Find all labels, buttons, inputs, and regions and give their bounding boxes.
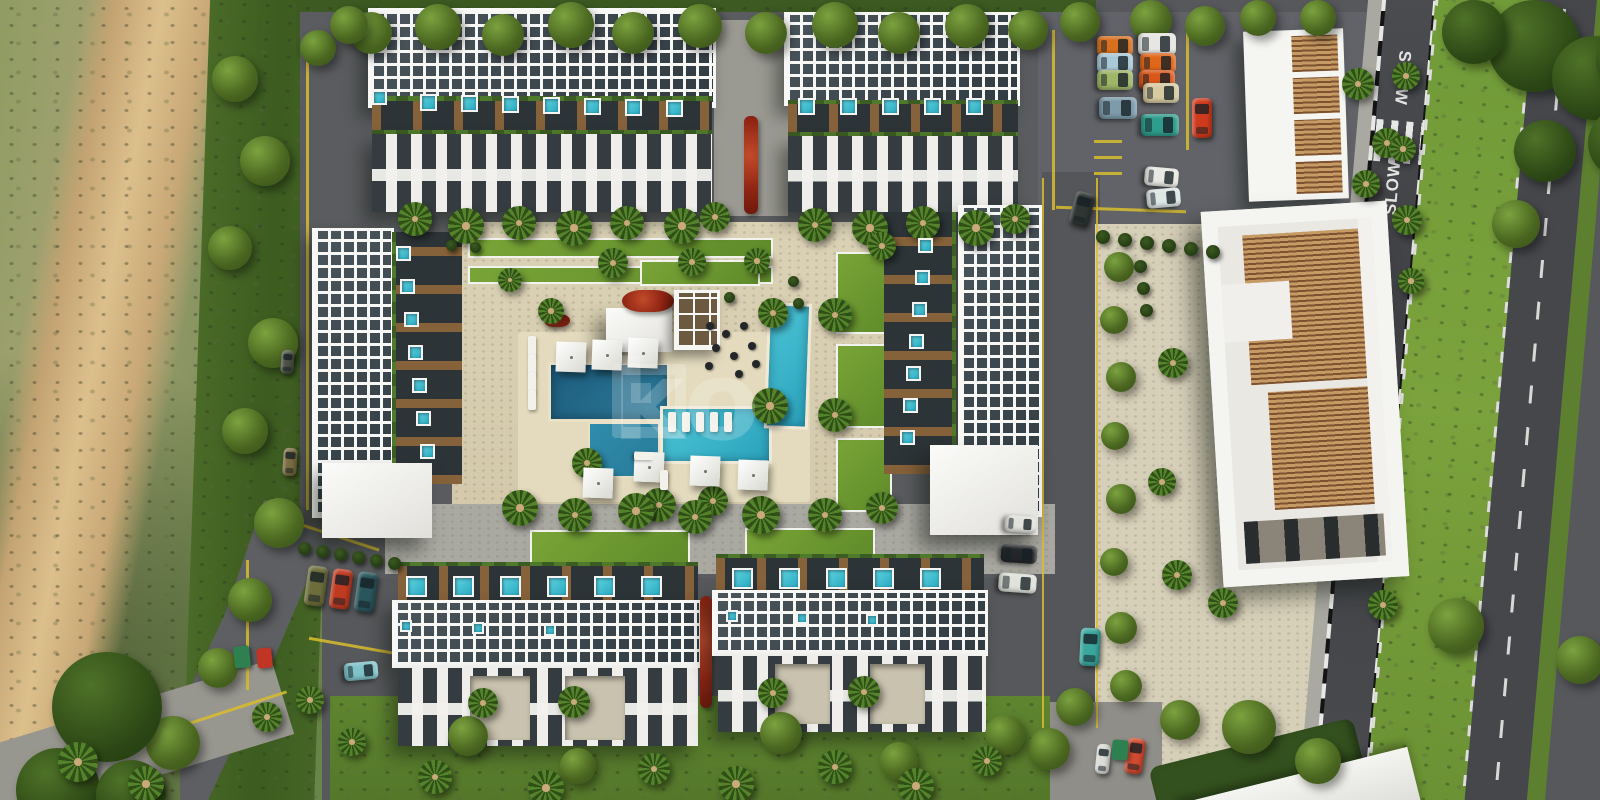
tree [212,56,258,102]
palm-tree [1158,348,1188,378]
palm-tree [700,202,730,232]
cypress-tree [316,545,329,558]
sun-lounger [660,470,668,490]
plunge-pool [594,576,615,597]
car [282,448,298,477]
cypress-tree [1096,230,1110,244]
plunge-pool [912,302,927,317]
palm-tree [898,768,934,800]
sun-lounger [724,412,732,432]
plunge-pool [826,568,847,589]
cypress-tree [1140,304,1153,317]
plunge-pool [798,98,815,115]
car [998,572,1037,594]
cafe-table [706,322,714,330]
dumpster [256,647,273,668]
tree [228,578,272,622]
tree [1442,0,1506,64]
tree [1106,484,1136,514]
plunge-pool [726,610,738,622]
plunge-pool [918,238,933,253]
plunge-pool [544,624,556,636]
cypress-tree [298,542,311,555]
plunge-pool [502,96,519,113]
palm-tree [758,298,788,328]
car [1000,544,1037,564]
tree [1104,252,1134,282]
tree [1556,636,1600,684]
plunge-pool [406,576,427,597]
plunge-pool [400,620,412,632]
car [1138,33,1176,55]
dumpster [233,645,251,669]
cypress-tree [388,557,401,570]
tree [254,498,304,548]
plunge-pool [420,94,437,111]
plunge-pool [920,568,941,589]
palm-tree [678,248,706,276]
plunge-pool [372,90,387,105]
tree [1222,700,1276,754]
plunge-pool [416,411,431,426]
tree [330,6,368,44]
palm-tree [610,206,644,240]
palm-tree [664,208,700,244]
cypress-tree [1118,233,1132,247]
sun-lounger [696,412,704,432]
palm-tree [498,268,522,292]
plunge-pool [915,270,930,285]
cypress-tree [1134,260,1147,273]
palm-tree [808,498,842,532]
car [1192,98,1212,138]
plunge-pool [900,430,915,445]
cafe-table [722,330,730,338]
tree [222,408,268,454]
car [1004,514,1037,533]
palm-tree [866,492,898,524]
plunge-pool [400,279,415,294]
palm-tree [558,498,592,532]
palm-tree [538,298,564,324]
car [1143,83,1179,103]
tree [1240,0,1276,36]
palm-tree [598,248,628,278]
sun-umbrella [582,467,613,498]
palm-tree [798,208,832,242]
palm-tree [868,232,896,260]
plunge-pool [420,444,435,459]
palm-tree [1162,560,1192,590]
tree [812,2,858,48]
plunge-pool [732,568,753,589]
palm-tree [1148,468,1176,496]
aerial-render-scene: SLOW SLOW ko [0,0,1600,800]
tree [678,4,722,48]
tree [198,648,238,688]
sun-lounger [634,452,654,460]
palm-tree [1398,268,1424,294]
tree [548,2,594,48]
tree [1060,2,1100,42]
sun-umbrella [689,455,720,486]
tree [1101,422,1129,450]
plunge-pool [625,99,642,116]
plunge-pool [796,612,808,624]
plunge-pool [666,100,683,117]
tree [1295,738,1341,784]
plunge-pool [906,366,921,381]
tree [448,716,488,756]
plunge-pool [543,97,560,114]
palm-tree [558,686,590,718]
cypress-tree [788,276,799,287]
palm-tree [556,210,592,246]
tree [1514,120,1576,182]
palm-tree [906,206,940,240]
palm-tree [58,742,98,782]
cafe-table [748,342,756,350]
sun-lounger [682,412,690,432]
plunge-pool [882,98,899,115]
cypress-tree [446,240,457,251]
car [280,350,295,375]
palm-tree [818,398,852,432]
palm-tree [618,493,654,529]
palm-tree [1392,62,1420,90]
car [303,565,328,607]
palm-tree [1208,588,1238,618]
car [353,571,378,613]
plunge-pool [909,334,924,349]
plunge-pool [866,614,878,626]
plunge-pool [840,98,857,115]
palm-tree [528,770,564,800]
cypress-tree [724,292,735,303]
plunge-pool [547,576,568,597]
palm-tree [958,210,994,246]
cypress-tree [1137,282,1150,295]
car [1079,628,1101,667]
palm-tree [448,208,484,244]
palm-tree [502,206,536,240]
palm-tree [296,686,324,714]
sun-lounger [528,336,536,356]
car [1068,190,1096,228]
sun-lounger [668,412,676,432]
tree [1300,0,1336,36]
car [343,661,378,682]
plunge-pool [453,576,474,597]
palm-tree [338,728,366,756]
sun-umbrella [627,337,658,368]
cafe-table [735,370,743,378]
tree [1492,200,1540,248]
car [1141,114,1179,136]
palm-tree [1000,204,1030,234]
plunge-pool [779,568,800,589]
dumpster [1111,739,1128,760]
palm-tree [742,496,780,534]
tree [612,12,654,54]
palm-tree [848,676,880,708]
sun-umbrella [737,459,768,490]
tree [1105,612,1137,644]
tree [1185,6,1225,46]
sun-umbrella [591,339,622,370]
cypress-tree [793,298,804,309]
tree [745,12,787,54]
palm-tree [818,750,852,784]
tree [482,14,524,56]
plunge-pool [584,98,601,115]
tree [1106,362,1136,392]
tree [560,748,596,784]
plunge-pool [408,345,423,360]
palm-tree [818,298,852,332]
plunge-pool [412,378,427,393]
tree [878,12,920,54]
plunge-pool [396,246,411,261]
car [1146,187,1182,209]
palm-tree [398,202,432,236]
tree [1160,700,1200,740]
sun-lounger [528,390,536,410]
plunge-pool [924,98,941,115]
tree [1008,10,1048,50]
cypress-tree [370,554,383,567]
palm-tree [744,248,770,274]
cypress-tree [1140,236,1154,250]
cafe-table [712,344,720,352]
cafe-table [740,322,748,330]
plunge-pool [641,576,662,597]
car [1144,166,1180,188]
palm-tree [1368,590,1398,620]
cypress-tree [334,548,347,561]
tree [300,30,336,66]
palm-tree [1352,170,1380,198]
palm-tree [718,766,754,800]
palm-tree [418,760,452,794]
tree [1100,306,1128,334]
tree [945,4,989,48]
palm-tree [1392,205,1422,235]
scene-objects [0,0,1600,800]
cafe-table [730,352,738,360]
tree [240,136,290,186]
tree [208,226,252,270]
tree [1100,548,1128,576]
cypress-tree [352,551,365,564]
palm-tree [638,753,670,785]
palm-tree [752,388,788,424]
tree [1056,688,1094,726]
plunge-pool [404,312,419,327]
sun-lounger [528,354,536,374]
cypress-tree [1184,242,1198,256]
cypress-tree [1206,245,1220,259]
palm-tree [1390,136,1416,162]
tree [760,712,802,754]
palm-tree [468,688,498,718]
sun-umbrella [555,341,586,372]
cypress-tree [470,242,481,253]
tree [1110,670,1142,702]
plunge-pool [500,576,521,597]
tree [1028,728,1070,770]
palm-tree [678,500,712,534]
plunge-pool [461,95,478,112]
sun-lounger [710,412,718,432]
cafe-table [752,360,760,368]
palm-tree [972,746,1002,776]
palm-tree [128,766,164,800]
car [1094,743,1111,774]
car [1099,97,1137,119]
tree [1428,598,1484,654]
plunge-pool [903,398,918,413]
cafe-table [705,362,713,370]
palm-tree [1342,68,1374,100]
palm-tree [502,490,538,526]
palm-tree [252,702,282,732]
plunge-pool [873,568,894,589]
car [328,568,353,610]
plunge-pool [472,622,484,634]
palm-tree [758,678,788,708]
tree [415,4,461,50]
cypress-tree [1162,239,1176,253]
plunge-pool [966,98,983,115]
sun-lounger [528,372,536,392]
car [1097,70,1133,90]
